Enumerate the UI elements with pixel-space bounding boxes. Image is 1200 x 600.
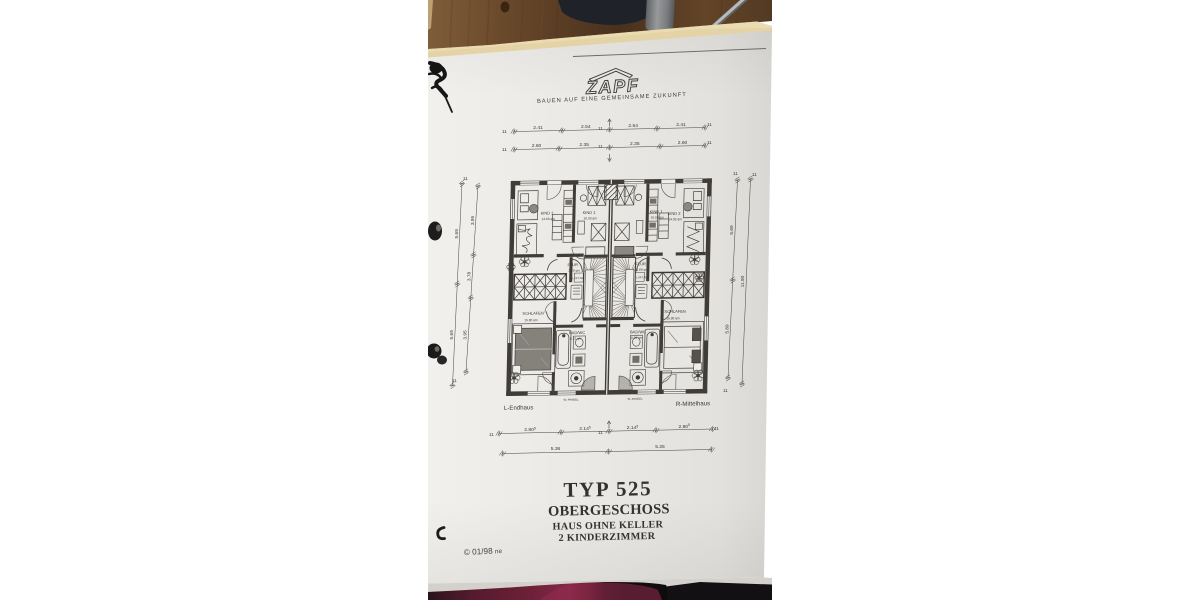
svg-text:11: 11 xyxy=(707,122,712,127)
svg-text:14.03 qm: 14.03 qm xyxy=(541,217,555,221)
svg-text:15.80 qm: 15.80 qm xyxy=(666,316,680,320)
svg-text:3.95: 3.95 xyxy=(463,330,469,340)
svg-text:5.69: 5.69 xyxy=(729,225,735,235)
svg-text:2 KINDERZIMMER: 2 KINDERZIMMER xyxy=(558,531,655,544)
svg-text:R-Mittelhaus: R-Mittelhaus xyxy=(676,400,710,408)
svg-text:3.69 qm: 3.69 qm xyxy=(636,268,648,272)
svg-text:11: 11 xyxy=(707,140,712,145)
svg-text:11: 11 xyxy=(714,426,719,431)
svg-text:FLUR: FLUR xyxy=(567,262,578,267)
svg-text:LUFT.AB: LUFT.AB xyxy=(572,276,583,280)
svg-text:W.-PANEEL: W.-PANEEL xyxy=(564,398,580,402)
svg-text:11: 11 xyxy=(463,176,468,181)
svg-text:11: 11 xyxy=(452,378,457,383)
svg-text:2.35: 2.35 xyxy=(630,141,640,147)
svg-text:11.90: 11.90 xyxy=(740,275,746,287)
svg-text:2.35: 2.35 xyxy=(579,142,589,148)
svg-text:SCHLAFEN: SCHLAFEN xyxy=(664,309,686,314)
svg-text:11: 11 xyxy=(598,126,603,131)
svg-text:TYP 525: TYP 525 xyxy=(563,476,652,502)
svg-text:5.69: 5.69 xyxy=(449,330,455,340)
svg-text:LUFT.AB: LUFT.AB xyxy=(636,275,647,279)
svg-text:5.69: 5.69 xyxy=(454,229,460,239)
svg-text:11: 11 xyxy=(598,430,603,435)
svg-text:3.69 qm: 3.69 qm xyxy=(568,269,580,273)
svg-text:3.95: 3.95 xyxy=(470,216,476,226)
svg-text:KIND 1: KIND 1 xyxy=(583,210,597,215)
svg-text:11: 11 xyxy=(723,388,728,393)
svg-text:8.13 qm: 8.13 qm xyxy=(570,337,582,341)
svg-text:15.80 qm: 15.80 qm xyxy=(524,318,538,322)
svg-text:2.54: 2.54 xyxy=(628,123,638,129)
svg-text:2.60: 2.60 xyxy=(532,143,542,149)
svg-text:KIND 2: KIND 2 xyxy=(668,211,682,216)
svg-text:KIND 2: KIND 2 xyxy=(541,210,555,215)
svg-text:11: 11 xyxy=(502,129,507,134)
svg-text:W.-PANEEL: W.-PANEEL xyxy=(628,397,644,401)
svg-text:11: 11 xyxy=(489,432,494,437)
svg-text:10.03 qm: 10.03 qm xyxy=(650,215,664,219)
svg-text:2.60: 2.60 xyxy=(678,140,688,146)
svg-text:KIND 1: KIND 1 xyxy=(650,209,664,214)
svg-text:OBERGESCHOSS: OBERGESCHOSS xyxy=(548,501,670,520)
svg-text:BAD/WC: BAD/WC xyxy=(630,329,646,334)
svg-text:11: 11 xyxy=(733,171,738,176)
svg-text:3.78: 3.78 xyxy=(466,272,472,282)
svg-text:10.03 qm: 10.03 qm xyxy=(583,216,597,220)
svg-text:11: 11 xyxy=(502,147,507,152)
svg-text:11: 11 xyxy=(752,172,757,177)
svg-text:2.41: 2.41 xyxy=(533,125,543,131)
svg-text:5.25: 5.25 xyxy=(655,444,665,450)
svg-text:14.03 qm: 14.03 qm xyxy=(668,217,682,221)
svg-text:SCHLAFEN: SCHLAFEN xyxy=(522,311,544,316)
svg-text:2.54: 2.54 xyxy=(581,124,591,130)
svg-text:11: 11 xyxy=(598,144,603,149)
svg-text:FLUR: FLUR xyxy=(635,261,646,266)
svg-text:5.69: 5.69 xyxy=(724,324,730,334)
svg-text:8.13 qm: 8.13 qm xyxy=(631,336,643,340)
svg-text:5.36: 5.36 xyxy=(551,446,561,452)
svg-text:L-Endhaus: L-Endhaus xyxy=(504,404,534,412)
svg-text:BAD/WC: BAD/WC xyxy=(569,330,585,335)
svg-text:2.41: 2.41 xyxy=(676,122,686,128)
